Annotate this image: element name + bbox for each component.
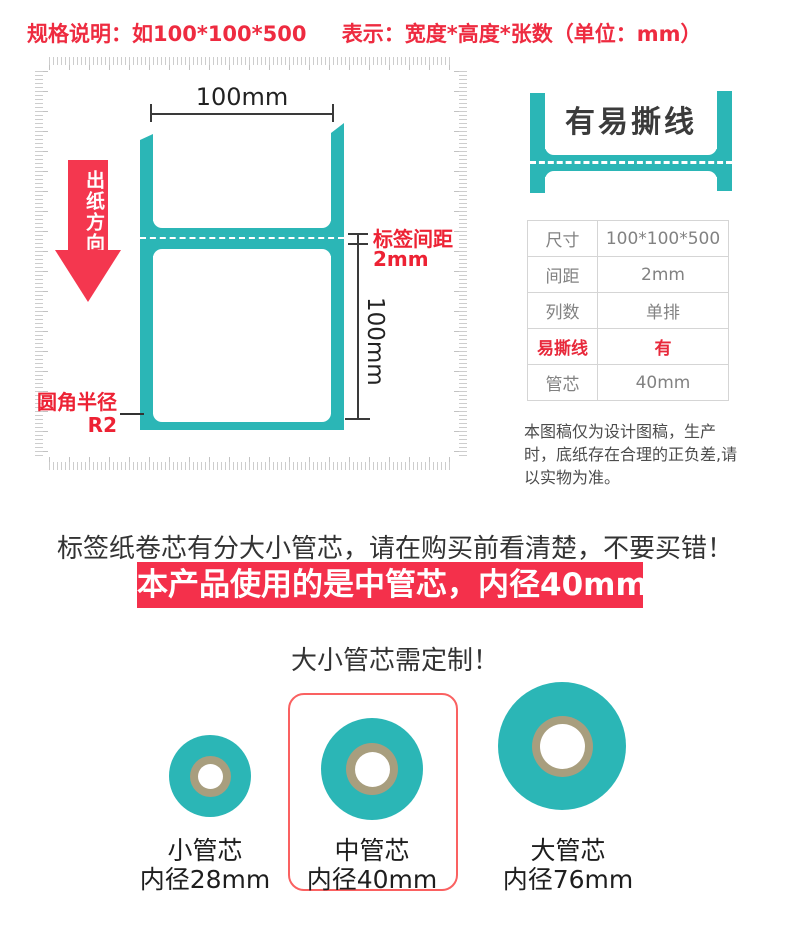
spec-format-text: 规格说明：如100*100*500 (27, 22, 306, 46)
ruler-right (454, 71, 467, 456)
core-caption-small: 小管芯 内径28mm (120, 836, 290, 894)
tear-demo-strip-left (530, 93, 545, 193)
backing-strip-left (140, 131, 153, 430)
core-size: 内径40mm (287, 865, 457, 894)
table-row-highlight: 易撕线 有 (528, 329, 728, 365)
gap-value: 2mm (373, 247, 429, 271)
corner-radius-value: R2 (35, 414, 117, 437)
table-row: 间距 2mm (528, 257, 728, 293)
label-sticker-top (153, 123, 331, 228)
spec-key: 管芯 (528, 365, 598, 400)
core-roll-medium-icon (321, 718, 423, 820)
tear-line-demo: 有易撕线 (520, 70, 745, 220)
spec-key: 列数 (528, 293, 598, 328)
label-diagram: 100mm 100mm 标签间距 2mm 圆角半径 R2 出纸方向 (35, 57, 467, 470)
width-dimension-label: 100mm (162, 83, 322, 111)
width-dimension-tick-left (150, 104, 152, 122)
table-row: 列数 单排 (528, 293, 728, 329)
spec-table: 尺寸 100*100*500 间距 2mm 列数 单排 易撕线 有 管芯 40m… (527, 220, 729, 401)
spec-value: 2mm (598, 257, 728, 292)
core-hole-icon (198, 764, 223, 789)
width-dimension-line (150, 113, 334, 115)
core-ring-icon (190, 756, 231, 797)
core-name: 小管芯 (120, 836, 290, 865)
spec-value: 40mm (598, 365, 728, 400)
spec-value: 100*100*500 (598, 221, 728, 256)
core-name: 大管芯 (483, 836, 653, 865)
product-spec-page: 规格说明：如100*100*500 表示：宽度*高度*张数（单位：mm） 100… (0, 0, 790, 947)
core-caption-large: 大管芯 内径76mm (483, 836, 653, 894)
spec-meaning-text: 表示：宽度*高度*张数（单位：mm） (342, 22, 702, 46)
core-caption-medium: 中管芯 内径40mm (287, 836, 457, 894)
height-dimension-line (357, 233, 359, 420)
spec-key: 易撕线 (528, 329, 598, 364)
core-subline: 大小管芯需定制！ (0, 640, 790, 677)
table-row: 尺寸 100*100*500 (528, 221, 728, 257)
spec-value: 有 (598, 329, 728, 364)
width-dimension-tick-right (332, 104, 334, 122)
core-size: 内径28mm (120, 865, 290, 894)
table-row: 管芯 40mm (528, 365, 728, 401)
paper-direction-arrowhead-icon (55, 250, 121, 302)
core-name: 中管芯 (287, 836, 457, 865)
ruler-top (49, 57, 453, 70)
paper-direction-label: 出纸方向 (68, 166, 108, 257)
corner-radius-label: 圆角半径 R2 (35, 391, 117, 437)
tear-dash-line (140, 237, 344, 239)
core-ring-icon (532, 716, 593, 777)
core-roll-small-icon (169, 735, 251, 817)
spec-key: 间距 (528, 257, 598, 292)
ruler-bottom (49, 457, 453, 470)
tear-demo-dash-line (530, 161, 732, 164)
corner-radius-pointer-line (120, 413, 144, 415)
height-dimension-tick-bottom (345, 418, 370, 420)
core-banner: 本产品使用的是中管芯，内径40mm (137, 562, 643, 608)
core-headline: 标签纸卷芯有分大小管芯，请在购买前看清楚，不要买错！ (0, 528, 790, 565)
core-roll-large-icon (498, 682, 626, 810)
core-hole-icon (355, 752, 390, 787)
tear-demo-label-bottom (545, 171, 717, 215)
core-ring-icon (346, 743, 398, 795)
core-size: 内径76mm (483, 865, 653, 894)
height-dimension-label: 100mm (362, 297, 388, 386)
tear-demo-strip-right (717, 91, 732, 191)
label-sticker-bottom (153, 249, 331, 422)
tear-demo-label: 有易撕线 (545, 97, 717, 141)
paper-direction-arrow: 出纸方向 (68, 160, 108, 251)
spec-key: 尺寸 (528, 221, 598, 256)
spec-format-note: 规格说明：如100*100*500 表示：宽度*高度*张数（单位：mm） (27, 18, 702, 48)
design-note: 本图稿仅为设计图稿，生产时，底纸存在合理的正负差,请以实物为准。 (524, 420, 740, 490)
spec-value: 单排 (598, 293, 728, 328)
backing-strip-right (331, 123, 344, 430)
core-hole-icon (540, 724, 585, 769)
corner-radius-text: 圆角半径 (35, 391, 117, 414)
